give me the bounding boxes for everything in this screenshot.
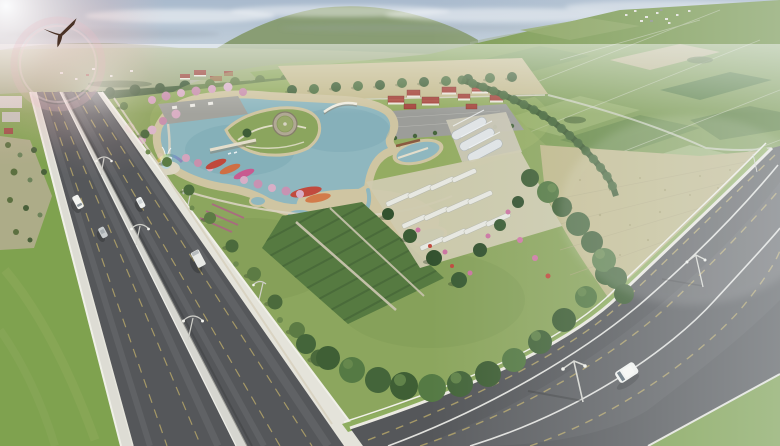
island-rotunda: [273, 112, 297, 136]
lens-flare: [0, 0, 185, 180]
aerial-park-rendering: [0, 0, 780, 446]
rendering-canvas: [0, 0, 780, 446]
